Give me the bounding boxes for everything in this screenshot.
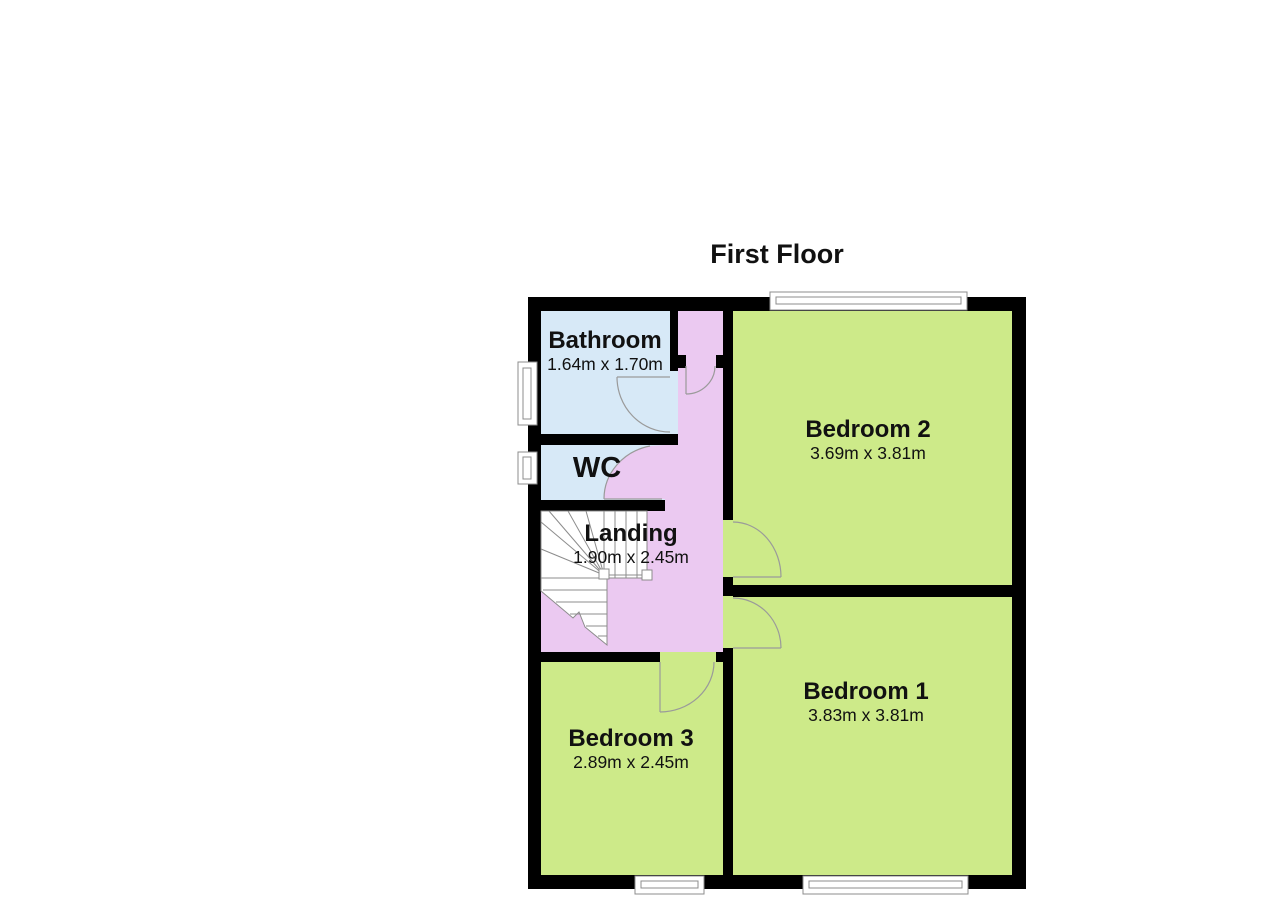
corridor-door-jamb-right	[716, 355, 723, 368]
bedroom3-name: Bedroom 3	[568, 726, 693, 753]
bathroom-name: Bathroom	[547, 328, 663, 355]
bedroom2-window	[770, 292, 967, 310]
bedroom1-name: Bedroom 1	[803, 679, 928, 706]
landing-dimensions: 1.90m x 2.45m	[573, 548, 689, 568]
wc-label: WC	[573, 452, 621, 484]
bedroom3-door-threshold	[660, 652, 716, 662]
bedroom2-dimensions: 3.69m x 3.81m	[805, 444, 930, 464]
bedroom3-dimensions: 2.89m x 2.45m	[568, 753, 693, 773]
wc-name: WC	[573, 452, 621, 484]
bedroom3-window	[635, 876, 704, 894]
bedroom1-dimensions: 3.83m x 3.81m	[803, 706, 928, 726]
stair-newel-post	[642, 570, 652, 580]
bedroom1-door-threshold	[723, 596, 733, 648]
bedroom1-window	[803, 876, 968, 894]
bedroom3-label: Bedroom 3 2.89m x 2.45m	[568, 726, 693, 772]
bathroom-door-threshold	[670, 371, 678, 434]
bedroom2-name: Bedroom 2	[805, 417, 930, 444]
landing-label: Landing 1.90m x 2.45m	[573, 521, 689, 567]
corridor-door-jamb-left	[678, 355, 686, 368]
bedroom1-label: Bedroom 1 3.83m x 3.81m	[803, 679, 928, 725]
wc-window	[518, 452, 537, 484]
landing-name: Landing	[573, 521, 689, 548]
bedroom1-floor	[733, 597, 1012, 875]
bathroom-label: Bathroom 1.64m x 1.70m	[547, 328, 663, 374]
bathroom-dimensions: 1.64m x 1.70m	[547, 355, 663, 375]
floor-title: First Floor	[710, 239, 844, 270]
floorplan-page: First Floor Bathroom 1.64m x 1.70m WC La…	[0, 0, 1280, 904]
bedroom2-door-threshold	[723, 520, 733, 577]
bedroom2-label: Bedroom 2 3.69m x 3.81m	[805, 417, 930, 463]
bathroom-window	[518, 362, 537, 425]
stair-newel-post	[599, 569, 609, 579]
